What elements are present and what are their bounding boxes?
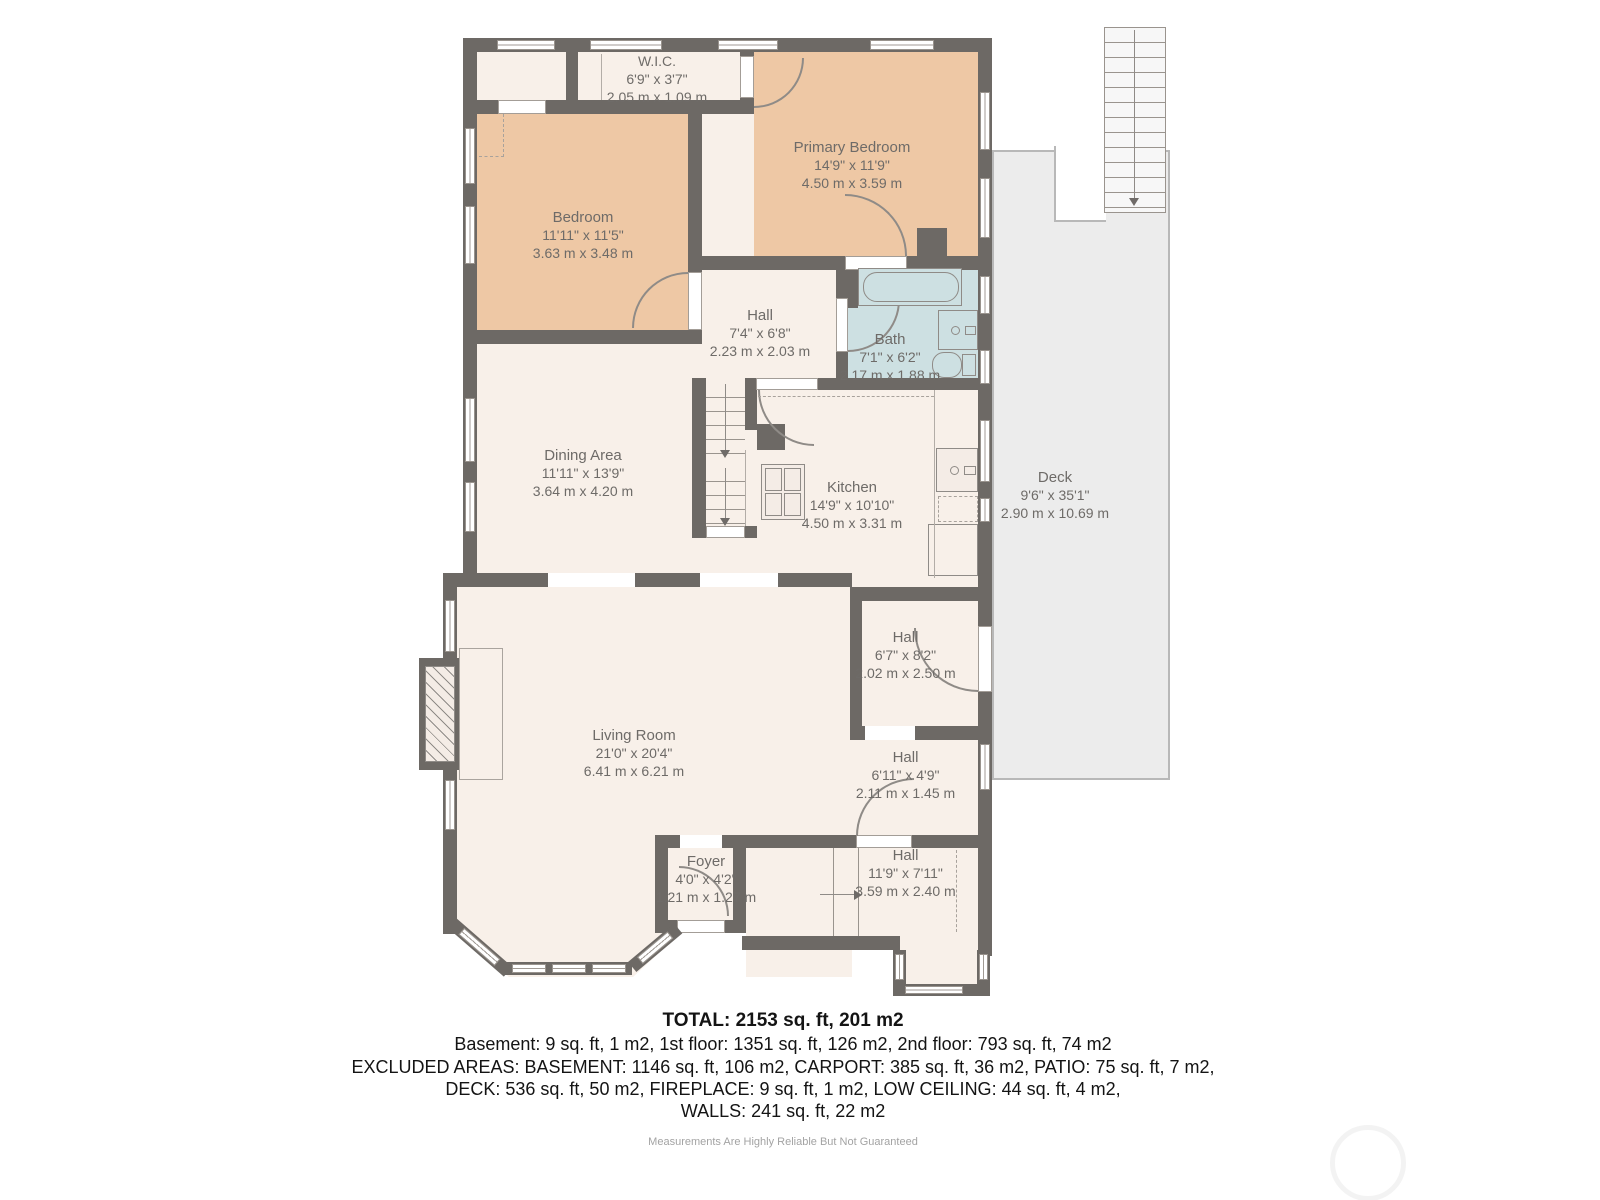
opening-hall-living bbox=[700, 573, 778, 587]
room-name: Hall bbox=[828, 748, 983, 767]
window-right-2 bbox=[980, 178, 990, 238]
room-dims-m: 4.50 m x 3.59 m bbox=[752, 175, 952, 193]
bathtub bbox=[858, 268, 962, 306]
porch-base bbox=[893, 950, 990, 986]
room-dims-m: 3.64 m x 4.20 m bbox=[483, 483, 683, 501]
window-right-1 bbox=[980, 92, 990, 150]
bay-mask-left bbox=[443, 934, 457, 978]
floor-plan: W.I.C. 6'9" x 3'7" 2.05 m x 1.09 m Prima… bbox=[0, 0, 1600, 1200]
bay-mask-right bbox=[668, 933, 746, 978]
window-right-3 bbox=[980, 276, 990, 314]
room-dims-ft: 14'9" x 11'9" bbox=[752, 157, 952, 175]
wall-kitchen-top-stub bbox=[745, 378, 756, 390]
room-name: Dining Area bbox=[483, 446, 683, 465]
window-left-4 bbox=[465, 482, 475, 532]
stairs-lower-arrow-icon bbox=[720, 518, 730, 526]
exterior-stairs bbox=[1104, 27, 1166, 213]
window-living-left-1 bbox=[445, 600, 455, 652]
wall-stairs-right bbox=[745, 390, 757, 430]
stairs-bottom-leaf bbox=[706, 526, 745, 538]
opening-foyer-top bbox=[680, 835, 722, 848]
window-top-4 bbox=[870, 40, 934, 50]
room-dims-ft: 7'4" x 6'8" bbox=[685, 325, 835, 343]
closet-opening bbox=[498, 100, 546, 114]
room-dims-ft: 7'1" x 6'2" bbox=[815, 349, 965, 367]
window-bay-1 bbox=[512, 964, 546, 973]
room-label-kitchen: Kitchen 14'9" x 10'10" 4.50 m x 3.31 m bbox=[752, 478, 952, 533]
room-name: Hall bbox=[685, 306, 835, 325]
room-label-deck: Deck 9'6" x 35'1" 2.90 m x 10.69 m bbox=[955, 468, 1155, 523]
room-label-hall-upper: Hall 7'4" x 6'8" 2.23 m x 2.03 m bbox=[685, 306, 835, 361]
stairs-upper-arrow-icon bbox=[720, 450, 730, 458]
window-porch-right bbox=[979, 954, 988, 980]
fireplace-hearth bbox=[459, 648, 503, 780]
room-dims-ft: 11'9" x 7'11" bbox=[828, 865, 983, 883]
room-dims-ft: 11'11" x 11'5" bbox=[483, 227, 683, 245]
room-name: Hall bbox=[828, 628, 983, 647]
room-label-dining: Dining Area 11'11" x 13'9" 3.64 m x 4.20… bbox=[483, 446, 683, 501]
room-label-bedroom: Bedroom 11'11" x 11'5" 3.63 m x 3.48 m bbox=[483, 208, 683, 263]
bedroom-lowceiling-marker bbox=[479, 114, 504, 157]
summary-excluded-1: EXCLUDED AREAS: BASEMENT: 1146 sq. ft, 1… bbox=[183, 1057, 1383, 1078]
wall-bottomhall-bottom bbox=[742, 936, 900, 950]
room-dims-m: 1.21 m x 1.27 m bbox=[631, 889, 781, 907]
room-dims-m: 3.59 m x 2.40 m bbox=[828, 883, 983, 901]
room-label-wic: W.I.C. 6'9" x 3'7" 2.05 m x 1.09 m bbox=[577, 53, 737, 107]
room-dims-m: 6.41 m x 6.21 m bbox=[534, 763, 734, 781]
room-dims-ft: 6'11" x 4'9" bbox=[828, 767, 983, 785]
window-right-4 bbox=[980, 350, 990, 384]
window-left-3 bbox=[465, 398, 475, 462]
wall-bedroom-bottom bbox=[463, 330, 702, 344]
chimney-block bbox=[917, 228, 947, 256]
room-dims-ft: 6'9" x 3'7" bbox=[577, 71, 737, 89]
room-dims-ft: 9'6" x 35'1" bbox=[955, 487, 1155, 505]
room-dims-m: 2.11 m x 1.45 m bbox=[828, 785, 983, 803]
exterior-stairs-down-arrow-icon bbox=[1129, 198, 1139, 206]
wall-kitchen-hall67 bbox=[850, 587, 992, 601]
room-dims-m: 2.17 m x 1.88 m bbox=[815, 367, 965, 385]
room-name: Primary Bedroom bbox=[752, 138, 952, 157]
wic-door-leaf bbox=[740, 56, 754, 98]
room-label-living: Living Room 21'0" x 20'4" 6.41 m x 6.21 … bbox=[534, 726, 734, 781]
room-label-bath: Bath 7'1" x 6'2" 2.17 m x 1.88 m bbox=[815, 330, 965, 385]
room-dims-m: 2.90 m x 10.69 m bbox=[955, 505, 1155, 523]
foyer-entry-leaf bbox=[677, 920, 725, 933]
window-top-2 bbox=[590, 40, 662, 50]
room-dims-m: 2.05 m x 1.09 m bbox=[577, 89, 737, 107]
bath-sink-faucet bbox=[965, 326, 976, 335]
watermark-circle bbox=[1330, 1125, 1406, 1200]
window-top-1 bbox=[497, 40, 555, 50]
room-dims-ft: 14'9" x 10'10" bbox=[752, 497, 952, 515]
summary-walls: WALLS: 241 sq. ft, 22 m2 bbox=[183, 1101, 1383, 1122]
window-left-1 bbox=[465, 128, 475, 184]
room-name: Deck bbox=[955, 468, 1155, 487]
exterior-stairs-center-line bbox=[1134, 30, 1135, 198]
room-label-hall67: Hall 6'7" x 8'2" 2.02 m x 2.50 m bbox=[828, 628, 983, 683]
kitchen-door-leaf bbox=[756, 378, 818, 390]
opening-dining-living bbox=[548, 573, 635, 587]
deck-area bbox=[992, 150, 1170, 780]
room-label-primary-bedroom: Primary Bedroom 14'9" x 11'9" 4.50 m x 3… bbox=[752, 138, 952, 193]
room-name: Living Room bbox=[534, 726, 734, 745]
room-dims-m: 2.02 m x 2.50 m bbox=[828, 665, 983, 683]
summary-total: TOTAL: 2153 sq. ft, 201 m2 bbox=[183, 1010, 1383, 1032]
window-top-3 bbox=[718, 40, 778, 50]
window-bay-2 bbox=[552, 964, 586, 973]
room-dims-ft: 11'11" x 13'9" bbox=[483, 465, 683, 483]
room-dims-ft: 21'0" x 20'4" bbox=[534, 745, 734, 763]
summary-excluded-2: DECK: 536 sq. ft, 50 m2, FIREPLACE: 9 sq… bbox=[183, 1079, 1383, 1100]
room-dims-ft: 6'7" x 8'2" bbox=[828, 647, 983, 665]
fireplace-hatch bbox=[425, 666, 455, 762]
room-name: Foyer bbox=[631, 852, 781, 871]
room-dims-m: 2.23 m x 2.03 m bbox=[685, 343, 835, 361]
stairs-right-thin-line bbox=[745, 450, 746, 526]
room-name: Bedroom bbox=[483, 208, 683, 227]
window-bay-3 bbox=[592, 964, 626, 973]
room-name: Bath bbox=[815, 330, 965, 349]
room-dims-ft: 4'0" x 4'2" bbox=[631, 871, 781, 889]
window-porch-bottom bbox=[905, 986, 963, 994]
stairs-upper-line bbox=[725, 384, 726, 450]
stairs-lower-line bbox=[725, 468, 726, 520]
window-living-left-2 bbox=[445, 780, 455, 830]
room-dims-m: 3.63 m x 3.48 m bbox=[483, 245, 683, 263]
room-label-hall-bottom: Hall 11'9" x 7'11" 3.59 m x 2.40 m bbox=[828, 846, 983, 901]
room-dims-m: 4.50 m x 3.31 m bbox=[752, 515, 952, 533]
opening-hall67-hall611 bbox=[865, 726, 915, 740]
window-porch-left bbox=[895, 954, 904, 980]
room-label-foyer: Foyer 4'0" x 4'2" 1.21 m x 1.27 m bbox=[631, 852, 781, 907]
summary-floors: Basement: 9 sq. ft, 1 m2, 1st floor: 135… bbox=[183, 1034, 1383, 1055]
room-name: Kitchen bbox=[752, 478, 952, 497]
deck-notch bbox=[1054, 146, 1106, 222]
window-left-2 bbox=[465, 206, 475, 264]
wall-dining-living bbox=[443, 573, 852, 587]
room-label-hall611: Hall 6'11" x 4'9" 2.11 m x 1.45 m bbox=[828, 748, 983, 803]
room-name: Hall bbox=[828, 846, 983, 865]
kitchen-counter-dashed bbox=[758, 396, 934, 397]
room-name: W.I.C. bbox=[577, 53, 737, 71]
measurements-disclaimer: Measurements Are Highly Reliable But Not… bbox=[183, 1136, 1383, 1148]
bathtub-inner bbox=[863, 272, 959, 302]
wall-stairs-left bbox=[692, 378, 706, 538]
